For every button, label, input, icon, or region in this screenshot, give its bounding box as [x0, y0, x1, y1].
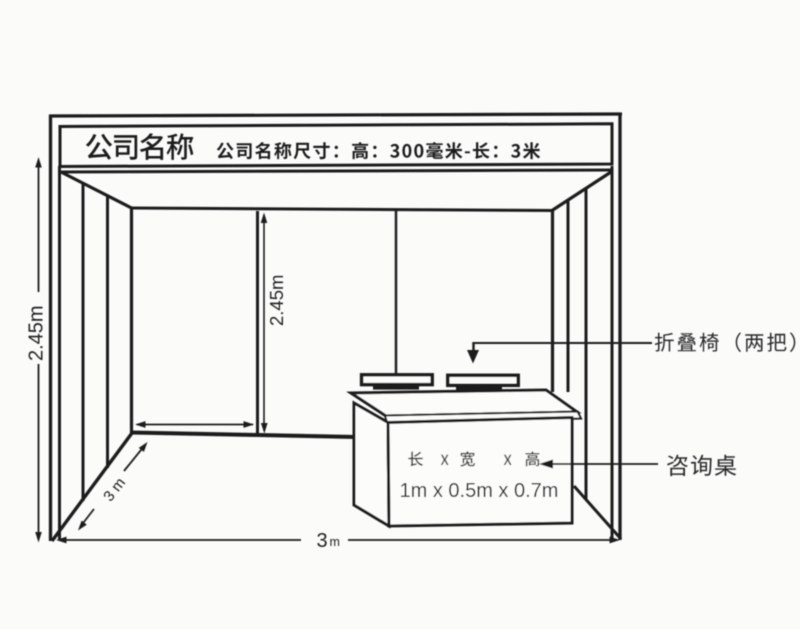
svg-text:3: 3 — [317, 530, 328, 552]
svg-text:2.45m: 2.45m — [266, 275, 287, 326]
svg-text:2.45m: 2.45m — [26, 305, 48, 361]
svg-text:1m x 0.5m x 0.7m: 1m x 0.5m x 0.7m — [400, 480, 559, 502]
svg-text:m: m — [330, 535, 340, 549]
